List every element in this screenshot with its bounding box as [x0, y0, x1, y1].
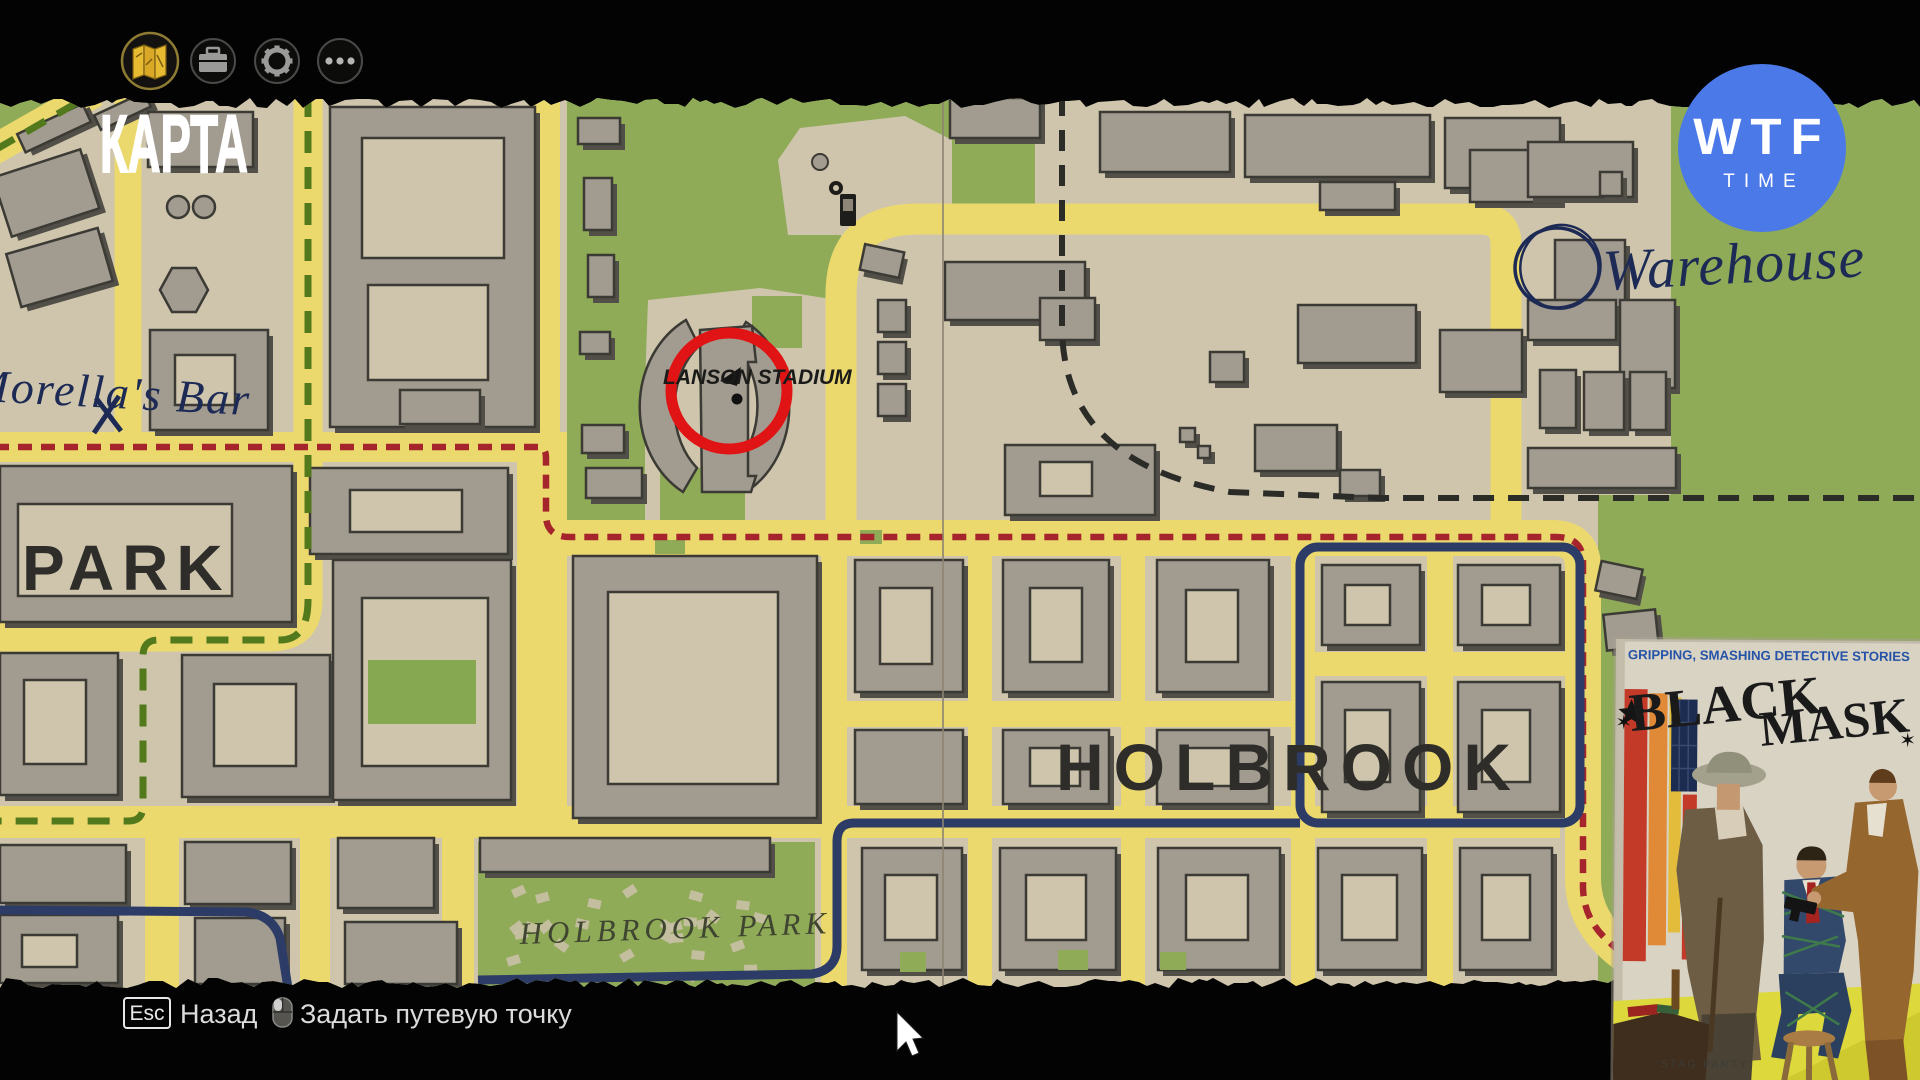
svg-text:✶: ✶: [1899, 730, 1916, 752]
svg-text:TIME: TIME: [1723, 171, 1804, 192]
svg-text:Esc: Esc: [129, 1002, 164, 1025]
svg-text:КАРТА: КАРТА: [100, 99, 248, 190]
svg-text:WTF: WTF: [1693, 108, 1830, 165]
svg-text:Warehouse: Warehouse: [1601, 224, 1867, 303]
svg-text:“STAG PARTY”: “STAG PARTY”: [1655, 1058, 1754, 1071]
svg-text:PARK: PARK: [22, 532, 231, 604]
svg-text:Назад: Назад: [180, 999, 258, 1029]
svg-text:HOLBROOK: HOLBROOK: [1056, 730, 1521, 804]
svg-text:LANSON STADIUM: LANSON STADIUM: [663, 366, 852, 389]
svg-text:✶: ✶: [1615, 712, 1632, 734]
svg-text:GRIPPING, SMASHING DETECTIVE S: GRIPPING, SMASHING DETECTIVE STORIES: [1628, 647, 1910, 664]
svg-text:Задать путевую точку: Задать путевую точку: [300, 999, 572, 1029]
